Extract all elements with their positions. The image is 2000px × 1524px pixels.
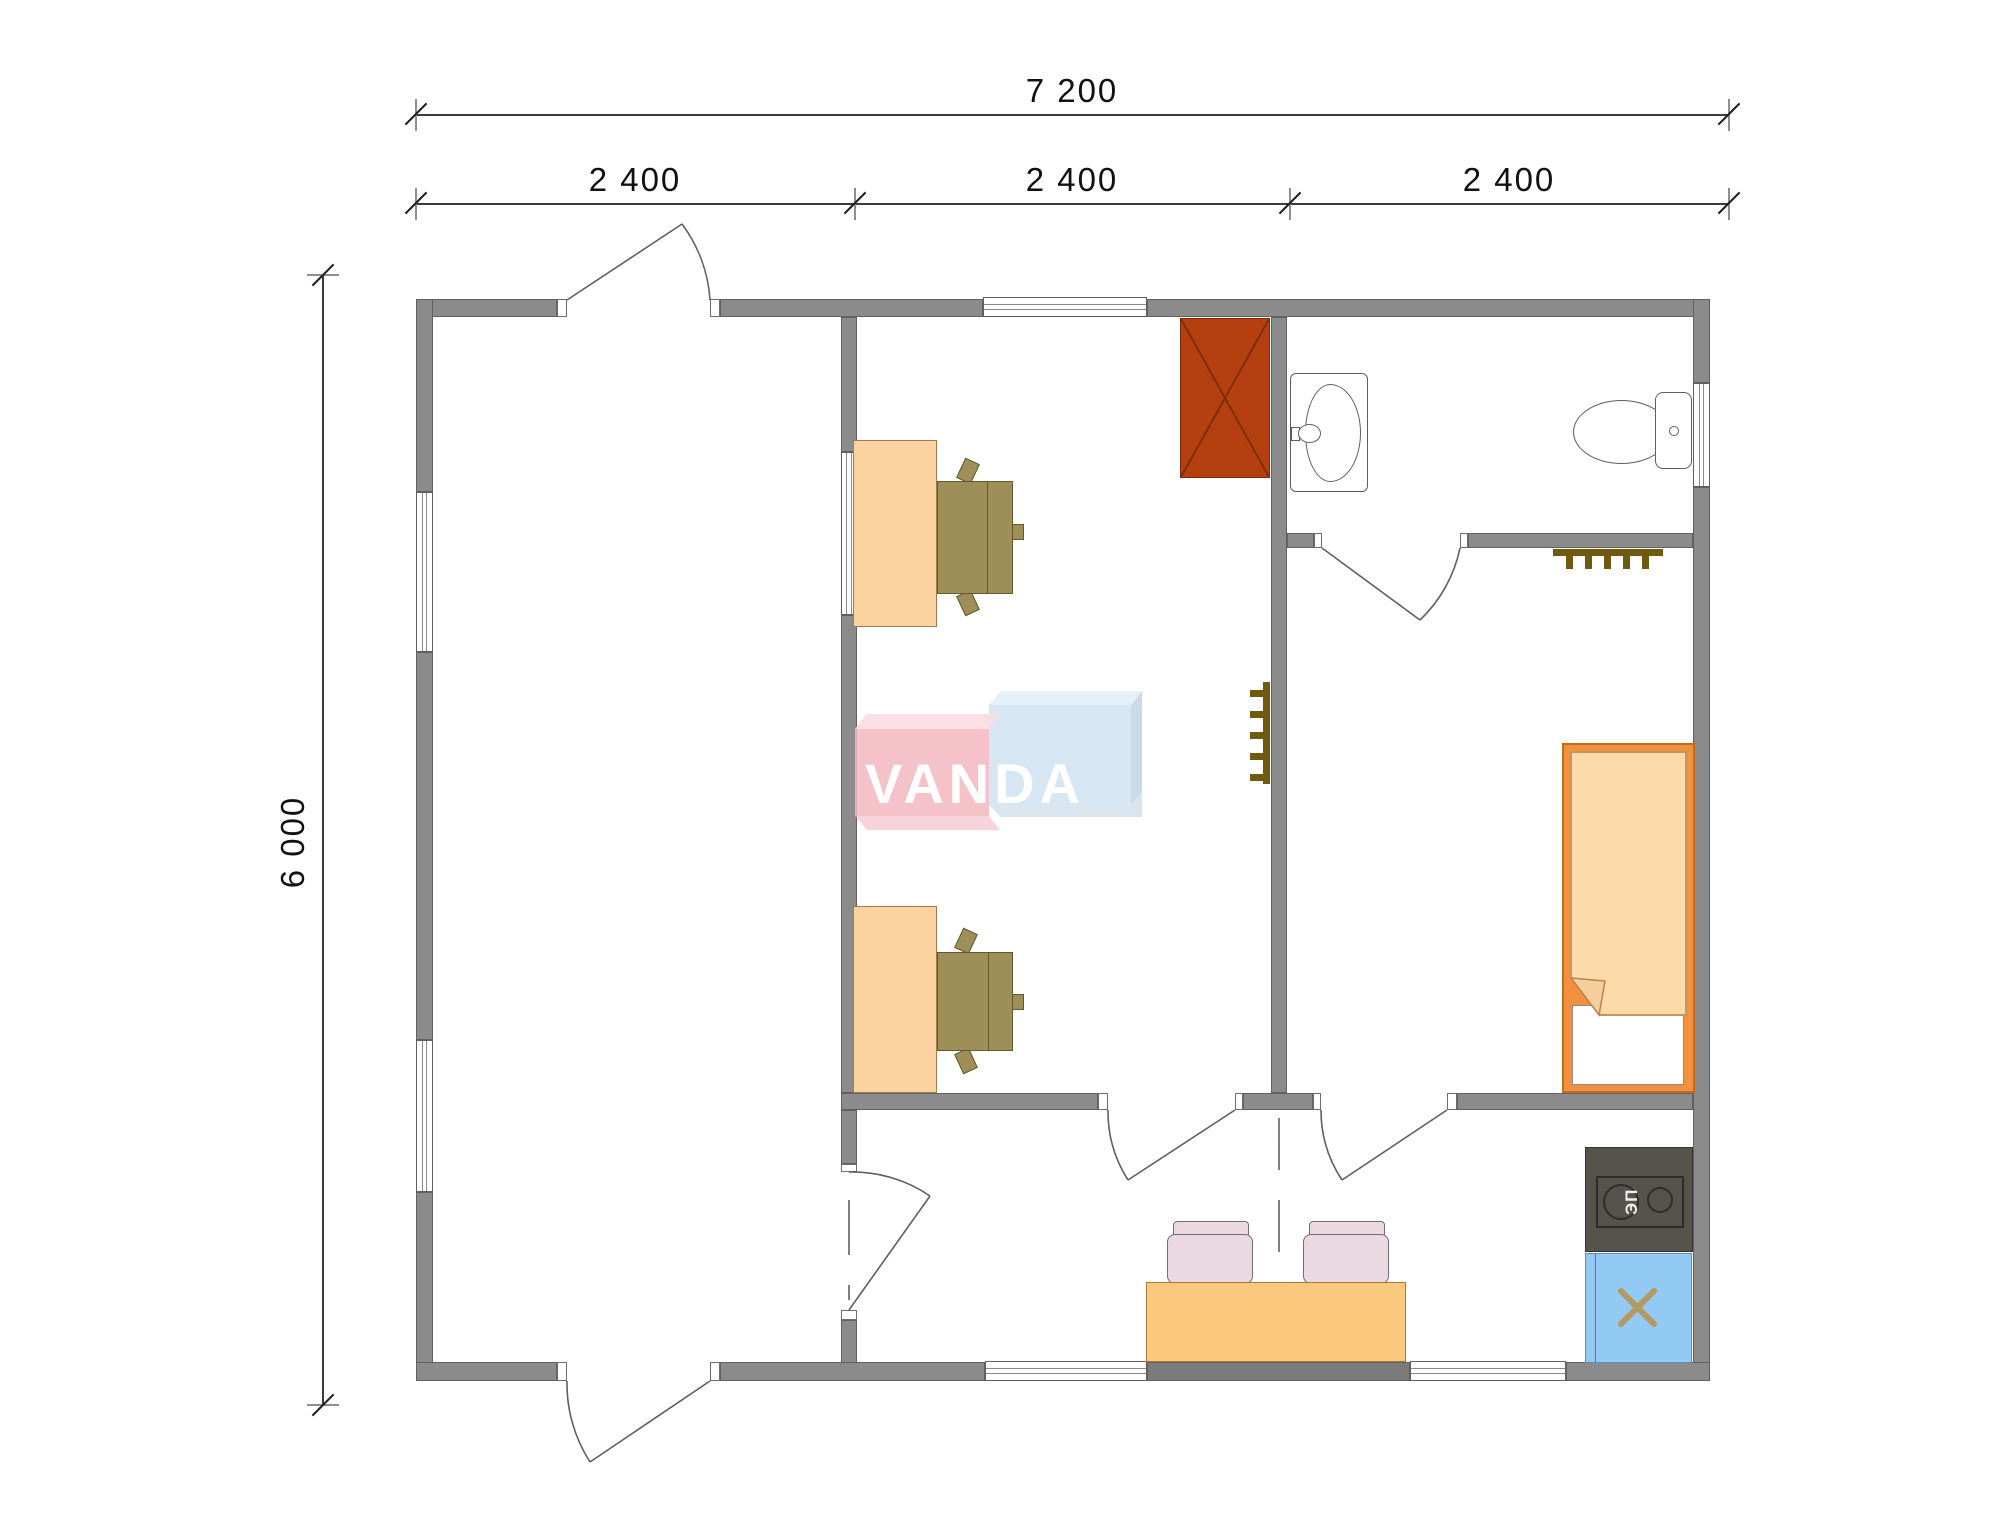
toilet-button [1669,426,1679,436]
wall-middle-bottom-stub [1243,1093,1313,1110]
door-jamb [841,1164,857,1172]
dimension-line-segments [416,203,1729,205]
faucet-icon [1298,424,1321,443]
wall-top-left [416,299,557,317]
logo-red-bottom [855,816,1000,830]
bed-sheet [1572,1005,1684,1085]
office-chair-2-armrest [954,928,978,955]
door-jamb [1098,1093,1108,1110]
logo-blue-bevel [989,691,1142,705]
logo-blue-side [1131,691,1142,805]
wall-interior-right [1271,317,1287,1093]
window-bottom-right [1410,1361,1566,1381]
window-bottom-left [985,1361,1147,1381]
radiator-middle-room [1263,682,1270,784]
door-jamb [1447,1093,1457,1110]
dimension-label-total-width: 7 200 [1026,72,1119,110]
door-top-entrance [567,224,710,300]
wall-middle-bottom-left [841,1093,1098,1110]
dimension-label-segment-2: 2 400 [1026,161,1119,199]
office-chair-2-armrest [954,1048,978,1075]
window-top [983,297,1147,317]
door-jamb [710,1362,720,1381]
window-left-lower [416,1040,433,1192]
wall-right-lower [1693,487,1710,1381]
shower-door-line [1595,1254,1596,1362]
logo-red-bevel [855,714,1000,729]
dimension-line-total-width [416,114,1729,116]
door-bathroom [1322,548,1460,620]
wall-bottom-middle [720,1362,985,1381]
dining-chair-2-seat [1303,1234,1389,1284]
floor-plan: 7 200 2 400 2 400 2 400 6 000 [0,0,2000,1524]
radiator-fin [1250,732,1263,739]
office-chair-2 [937,952,1013,1051]
dimension-label-total-height: 6 000 [274,796,312,889]
radiator-fin [1642,556,1649,569]
door-jamb [1313,1093,1321,1110]
wall-top-right [1147,299,1710,317]
door-middle-room [1108,1110,1235,1180]
logo-text: VANDA [865,752,1085,815]
toilet-tank [1655,392,1692,469]
door-jamb [557,299,567,317]
wall-bathroom-right [1468,533,1693,548]
door-jamb [841,1310,857,1320]
stove-label: ЭП [1622,1178,1648,1226]
door-jamb [710,299,720,317]
wall-interior-left-stub [841,1320,857,1363]
vanda-logo: VANDA [855,691,1147,833]
desk-2 [853,906,937,1093]
dining-table [1146,1282,1406,1362]
radiator-fin [1566,556,1573,569]
shower-cabin [1585,1253,1692,1363]
dimension-label-segment-1: 2 400 [589,161,682,199]
door-left-room [849,1172,930,1310]
door-bottom-entrance [567,1381,710,1462]
radiator-fin [1623,556,1630,569]
sink [1290,373,1368,492]
window-left-upper [416,492,433,652]
wall-interior-left-upper [841,317,857,452]
desk-1 [853,440,937,627]
dining-chair-1-seat [1167,1234,1253,1284]
wall-right-upper [1693,299,1710,383]
radiator-fin [1250,753,1263,760]
wall-bedroom-bottom [1457,1093,1693,1110]
window-right-bathroom [1693,383,1710,487]
radiator-fin [1250,690,1263,697]
wall-left-upper [416,299,433,492]
wall-left-lower [416,1192,433,1381]
wall-left-middle [416,652,433,1040]
office-chair-1 [937,481,1013,594]
dimension-label-segment-3: 2 400 [1463,161,1556,199]
radiator-fin [1250,774,1263,781]
wall-bottom-left [416,1362,557,1381]
radiator-fin [1250,711,1263,718]
wall-top-middle [720,299,983,317]
radiator-fin [1604,556,1611,569]
door-bedroom [1321,1110,1447,1180]
door-jamb [557,1362,567,1381]
door-jamb [1235,1093,1243,1110]
wall-bottom-under-table [1147,1362,1410,1381]
stove-burner-small [1647,1187,1673,1213]
door-jamb [1460,533,1468,548]
wall-bottom-right [1566,1362,1710,1381]
radiator-fin [1585,556,1592,569]
wall-interior-left-hall [841,1110,857,1164]
wall-bathroom-left [1287,533,1314,548]
door-jamb [1314,533,1322,548]
dimension-line-total-height [322,275,324,1406]
radiator-bedroom [1553,549,1663,556]
wardrobe [1180,318,1270,478]
